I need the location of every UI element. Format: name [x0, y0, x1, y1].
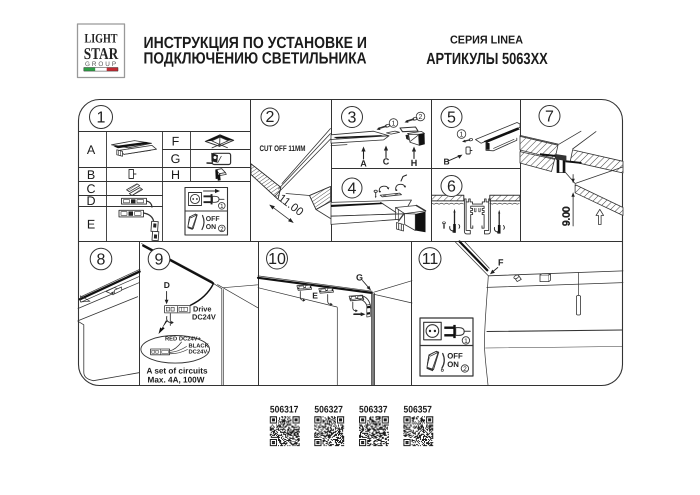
svg-text:11: 11 — [422, 251, 439, 268]
svg-text:506337: 506337 — [359, 404, 388, 415]
svg-text:BLACK: BLACK — [189, 343, 210, 350]
svg-text:1: 1 — [220, 203, 224, 210]
svg-text:D: D — [86, 194, 95, 208]
svg-text:9: 9 — [155, 252, 164, 269]
svg-text:D: D — [164, 280, 170, 290]
svg-text:ON: ON — [206, 224, 216, 231]
svg-text:F: F — [498, 258, 504, 268]
svg-text:H: H — [171, 168, 180, 182]
svg-text:A set of circuits: A set of circuits — [146, 366, 208, 375]
svg-text:F: F — [172, 135, 180, 149]
svg-text:11.00: 11.00 — [276, 192, 306, 218]
svg-text:2: 2 — [463, 366, 467, 373]
svg-text:1: 1 — [392, 121, 396, 128]
svg-text:B: B — [87, 168, 95, 182]
svg-text:C: C — [383, 157, 390, 167]
svg-text:1: 1 — [464, 338, 468, 345]
svg-text:A: A — [360, 159, 367, 169]
svg-text:ON: ON — [447, 360, 459, 369]
svg-text:2: 2 — [266, 109, 275, 126]
svg-text:E: E — [87, 218, 95, 232]
svg-text:A: A — [87, 143, 96, 157]
svg-text:RED DC24V+: RED DC24V+ — [165, 336, 202, 343]
svg-text:5: 5 — [447, 110, 456, 127]
svg-text:OFF: OFF — [206, 216, 220, 223]
svg-text:B: B — [444, 156, 450, 166]
svg-text:G: G — [171, 152, 181, 166]
svg-text:Max. 4A, 100W: Max. 4A, 100W — [148, 375, 205, 384]
svg-text:4: 4 — [348, 181, 357, 198]
svg-text:H: H — [411, 158, 418, 168]
svg-text:DC24V: DC24V — [192, 313, 216, 322]
svg-text:DC24V-: DC24V- — [189, 349, 209, 356]
svg-text:GROUP: GROUP — [85, 61, 118, 68]
svg-text:6: 6 — [447, 179, 456, 196]
svg-text:E: E — [312, 291, 318, 301]
svg-text:1: 1 — [97, 110, 106, 127]
svg-text:9.00: 9.00 — [562, 206, 573, 226]
svg-text:2: 2 — [220, 226, 224, 233]
svg-text:G: G — [356, 273, 363, 283]
svg-text:CUT OFF 11MM: CUT OFF 11MM — [260, 144, 306, 153]
svg-text:СЕРИЯ LINEA: СЕРИЯ LINEA — [450, 35, 523, 47]
svg-text:10: 10 — [268, 251, 286, 268]
svg-text:7: 7 — [545, 109, 554, 126]
svg-text:1: 1 — [460, 132, 464, 139]
svg-text:506357: 506357 — [403, 404, 432, 415]
svg-text:8: 8 — [97, 252, 106, 269]
svg-text:506327: 506327 — [314, 404, 343, 415]
svg-text:3: 3 — [348, 110, 357, 127]
svg-text:ПОДКЛЮЧЕНИЮ СВЕТИЛЬНИКА: ПОДКЛЮЧЕНИЮ СВЕТИЛЬНИКА — [144, 50, 367, 68]
svg-text:АРТИКУЛЫ 5063ХХ: АРТИКУЛЫ 5063ХХ — [426, 50, 548, 68]
svg-text:2: 2 — [419, 114, 423, 121]
svg-text:506317: 506317 — [270, 404, 299, 415]
